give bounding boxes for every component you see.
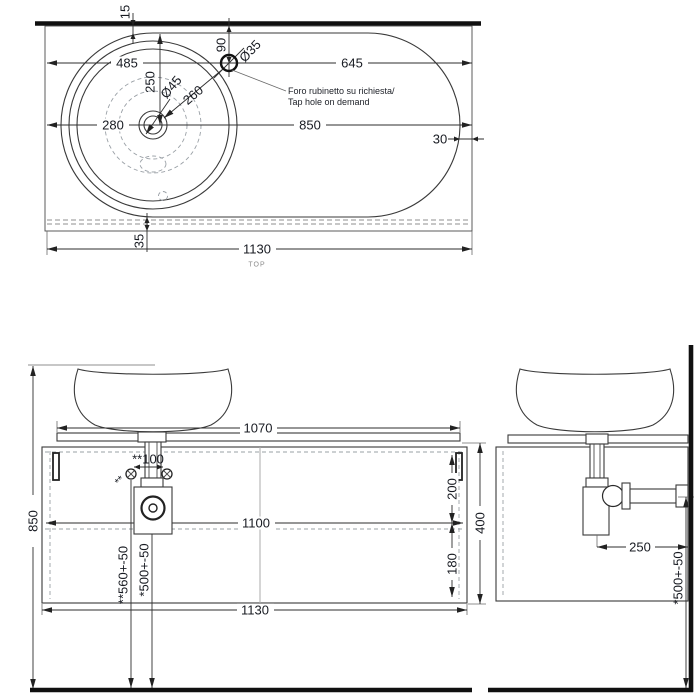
dim-label-front-to-center: 250 <box>143 71 158 93</box>
dim-left-to-center: 280 <box>47 118 153 133</box>
dim-label-total-width-front: 1130 <box>241 603 269 618</box>
dim-left-to-tap: 485 <box>47 56 229 71</box>
drain-flange-side <box>586 434 608 444</box>
outlet-nut-side <box>622 483 630 509</box>
tap-note-line1: Foro rubinetto su richiesta/ <box>288 86 395 96</box>
dim-screw-spacing: **100 <box>132 452 164 470</box>
dim-label-screw-spacing: **100 <box>132 452 164 467</box>
view-label-top: TOP <box>248 262 265 269</box>
dim-label-upper-offset: 200 <box>445 478 460 500</box>
dim-label-drain-height-front: *500+-50 <box>137 543 152 596</box>
trap-nut-front <box>141 478 163 487</box>
drain-tailpipe-side <box>590 444 604 478</box>
dim-label-bottom-gap: 35 <box>132 234 147 248</box>
dim-label-drain-to-wall: 250 <box>629 540 651 555</box>
dim-label-left-to-tap: 485 <box>116 56 138 71</box>
dim-tap-to-right: 645 <box>229 56 472 71</box>
basin-bowl-side <box>516 369 673 432</box>
overflow-channel-dashed <box>140 156 166 172</box>
dim-total-width-top: 1130 <box>47 231 472 257</box>
dim-label-screw-height: **560+-50 <box>116 546 131 604</box>
dim-label-lower-offset: 180 <box>445 553 460 575</box>
top-view: 15 485 645 250 90 Ø35 <box>35 5 484 269</box>
basin-bowl-front <box>74 369 231 432</box>
dim-label-tap-diameter: Ø35 <box>236 37 264 65</box>
dim-bottom-gap: 35 <box>132 213 150 252</box>
dim-label-wall-to-tap: 90 <box>214 38 229 52</box>
dim-label-center-to-right: 850 <box>299 118 321 133</box>
dim-label-total-height: 850 <box>26 510 41 532</box>
technical-drawing: 15 485 645 250 90 Ø35 <box>0 0 700 700</box>
dim-label-wall-gap: 15 <box>118 5 133 19</box>
dim-label-left-to-center: 280 <box>102 118 124 133</box>
trap-elbow-side <box>603 486 624 507</box>
drain-flange-front <box>138 432 166 442</box>
dim-label-tap-to-right: 645 <box>341 56 363 71</box>
outlet-pipe-side <box>630 489 676 503</box>
dim-label-inner-width: 1100 <box>242 516 270 531</box>
dim-drain-height-front: *500+-50 <box>137 534 153 688</box>
front-view: 1100 ** <box>26 365 488 690</box>
dim-label-panel-height: 400 <box>473 512 488 534</box>
dim-label-total-width-top: 1130 <box>243 242 271 257</box>
dim-label-right-gap: 30 <box>433 132 447 147</box>
dim-label-drain-height-side: *500+-50 <box>671 551 686 604</box>
fixing-hole-dashed <box>159 192 168 201</box>
trap-ring-front <box>142 497 165 520</box>
side-view: 250 *500+-50 <box>488 345 694 692</box>
trap-nut-side <box>586 478 608 487</box>
dim-total-width-front: 1130 <box>42 603 467 618</box>
drawing-canvas: 15 485 645 250 90 Ø35 <box>0 0 700 700</box>
tap-note-leader <box>232 70 286 91</box>
tap-note-line2: Tap hole on demand <box>288 97 370 107</box>
dim-label-counter-width: 1070 <box>244 421 273 436</box>
